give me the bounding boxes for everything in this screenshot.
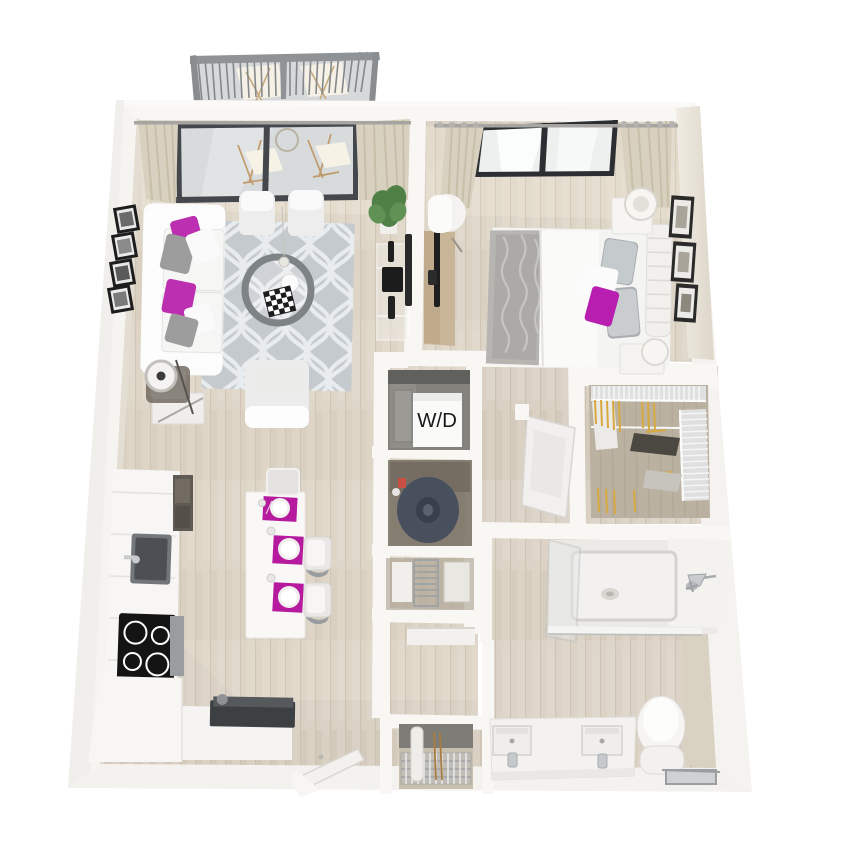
svg-text:W/D: W/D — [417, 409, 457, 432]
